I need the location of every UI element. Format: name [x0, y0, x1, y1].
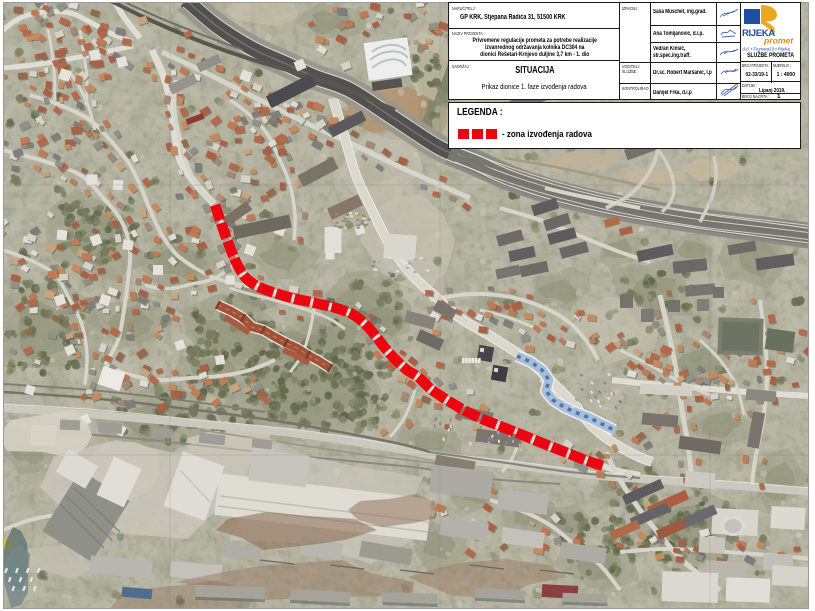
svg-text:d.d. • Fiumara13 • Rijeka: d.d. • Fiumara13 • Rijeka — [743, 47, 791, 52]
svg-text:promet: promet — [763, 36, 794, 46]
